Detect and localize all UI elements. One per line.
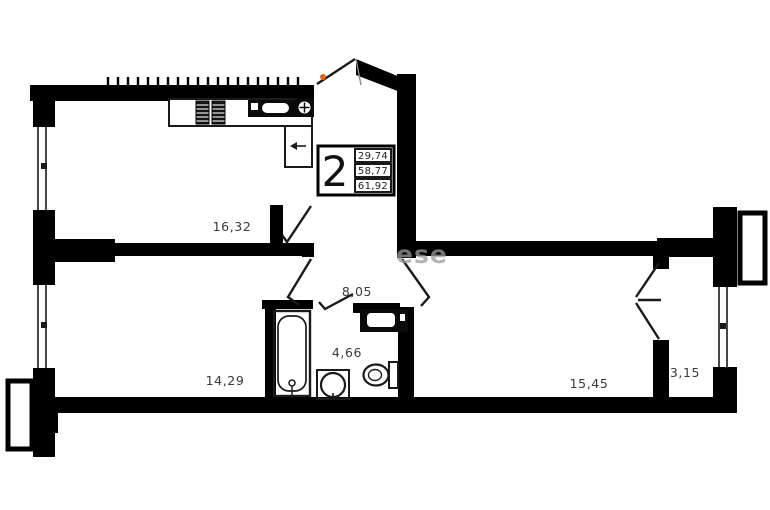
wall-right-rooms-top — [416, 241, 657, 256]
loggia-window-mullion — [720, 323, 726, 329]
watermark-text: ese — [396, 240, 448, 269]
washing-machine — [360, 309, 408, 332]
label-bedroom-right-area: 15,45 — [570, 376, 609, 391]
label-bathroom-area: 4,66 — [332, 345, 362, 360]
wall-bath-top-left — [262, 300, 313, 309]
balcony-slab-left — [8, 381, 32, 449]
floor-plan-drawing: 16,32 8,05 4,66 14,29 15,45 3,15 2 29,74… — [0, 0, 770, 510]
area-stamp: 2 29,74 58,77 61,92 — [318, 146, 394, 196]
stove-icon — [196, 101, 209, 124]
wall-loggia-divider — [653, 340, 669, 397]
wall-hall-stub — [270, 205, 283, 245]
label-kitchen-living-area: 16,32 — [213, 219, 252, 234]
stamp-total-area-with-balcony: 61,92 — [358, 181, 388, 192]
wall-door-stub — [302, 243, 314, 257]
stamp-living-area: 29,74 — [358, 151, 388, 162]
floor-plan: 16,32 8,05 4,66 14,29 15,45 3,15 2 29,74… — [0, 0, 770, 510]
label-bedroom-left-area: 14,29 — [206, 373, 245, 388]
stove-icon — [212, 101, 225, 124]
washing-machine-icon — [367, 313, 395, 327]
wall-right-upper — [713, 207, 737, 287]
stamp-total-area: 58,77 — [358, 166, 388, 177]
label-loggia-area: 3,15 — [670, 365, 700, 380]
kitchen-sink-icon — [262, 103, 289, 113]
bedroom-window-mullion — [41, 322, 47, 328]
stamp-rooms-count: 2 — [322, 147, 349, 196]
wall-bottom — [33, 397, 737, 413]
entrance-door-accent-dot — [320, 74, 326, 80]
washing-machine-detail — [400, 314, 405, 321]
wall-bottom-left-stub — [33, 413, 58, 433]
wall-divider-thick — [50, 239, 115, 262]
balcony-slab-right — [740, 213, 765, 283]
label-hall-area: 8,05 — [342, 284, 372, 299]
wall-entrance-right — [397, 74, 416, 258]
wall-right-rooms-top-thick — [657, 238, 717, 257]
kitchen-sink-tap — [251, 103, 258, 110]
kitchen-window-mullion — [41, 163, 47, 169]
